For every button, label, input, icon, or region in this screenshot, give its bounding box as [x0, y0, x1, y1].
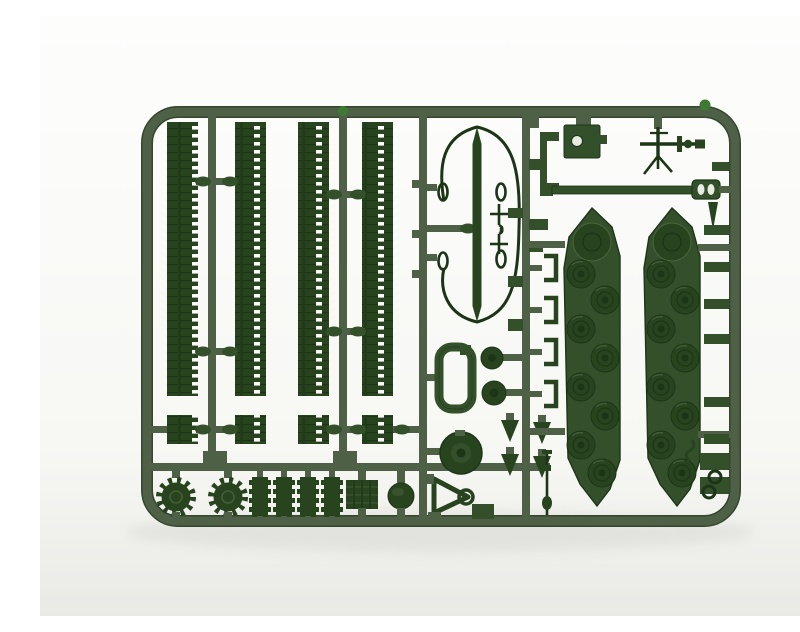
hull-panel-right	[644, 208, 700, 506]
hull-panel-left	[564, 208, 620, 506]
ribbed-roller-1	[249, 469, 271, 524]
sprue-gate-knob	[338, 106, 348, 116]
track-segment-4	[362, 415, 393, 444]
ribbed-roller-2	[273, 469, 295, 524]
track-segment-2	[235, 415, 266, 444]
track-strip-3	[298, 122, 329, 396]
ribbed-roller-4	[321, 469, 343, 524]
muzzle-brake	[692, 180, 720, 199]
track-segment-1	[167, 415, 198, 444]
track-strip-2	[235, 122, 266, 396]
track-strip-1	[167, 122, 198, 396]
track-segment-3	[298, 415, 329, 444]
track-strip-4	[362, 122, 393, 396]
sprue-gate-knob	[700, 100, 711, 111]
sprue-art	[40, 16, 800, 616]
sprue-photo	[40, 16, 800, 616]
ribbed-roller-3	[297, 469, 319, 524]
